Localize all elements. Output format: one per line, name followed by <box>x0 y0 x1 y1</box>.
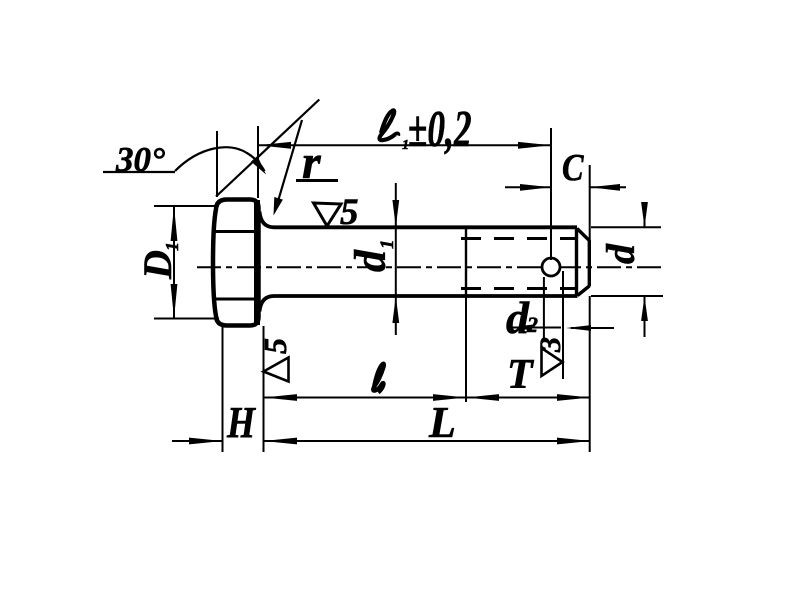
svg-text:3: 3 <box>534 337 567 353</box>
svg-text:30°: 30° <box>115 140 165 179</box>
svg-text:5: 5 <box>257 338 293 354</box>
svg-text:±0,2: ±0,2 <box>408 99 472 157</box>
svg-text:T: T <box>507 352 535 398</box>
svg-text:D: D <box>135 250 180 280</box>
svg-text:d: d <box>346 249 395 272</box>
svg-text:2: 2 <box>526 312 538 337</box>
svg-text:5: 5 <box>340 192 359 233</box>
svg-text:1: 1 <box>162 242 182 251</box>
svg-text:C: C <box>562 147 584 189</box>
svg-text:L: L <box>428 398 456 447</box>
svg-text:1: 1 <box>377 240 398 250</box>
svg-text:H: H <box>226 398 256 447</box>
svg-text:d: d <box>598 243 643 264</box>
